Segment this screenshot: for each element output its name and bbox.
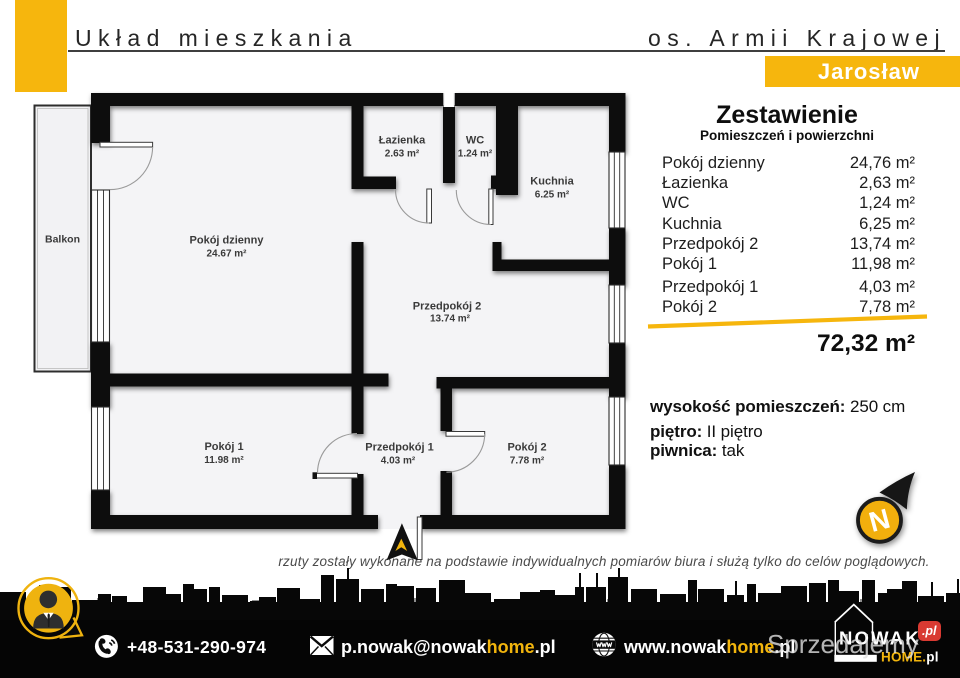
svg-text:Balkon: Balkon (45, 234, 80, 246)
svg-text:Pokój 2: Pokój 2 (507, 442, 546, 454)
svg-text:4.03 m²: 4.03 m² (381, 456, 416, 467)
svg-text:1.24 m²: 1.24 m² (458, 149, 493, 160)
svg-text:13.74 m²: 13.74 m² (430, 314, 471, 325)
svg-text:Pokój 1: Pokój 1 (204, 441, 243, 453)
svg-text:24.67 m²: 24.67 m² (206, 249, 247, 260)
svg-text:2.63 m²: 2.63 m² (385, 149, 420, 160)
svg-text:WC: WC (466, 135, 484, 147)
svg-text:Łazienka: Łazienka (379, 135, 426, 147)
svg-text:Przedpokój 2: Przedpokój 2 (413, 301, 481, 313)
svg-text:Przedpokój 1: Przedpokój 1 (365, 442, 433, 454)
svg-text:11.98 m²: 11.98 m² (204, 455, 244, 466)
svg-text:6.25 m²: 6.25 m² (535, 190, 570, 201)
svg-text:7.78 m²: 7.78 m² (510, 456, 545, 467)
svg-text:Pokój dzienny: Pokój dzienny (190, 235, 265, 247)
svg-text:Kuchnia: Kuchnia (530, 176, 574, 188)
